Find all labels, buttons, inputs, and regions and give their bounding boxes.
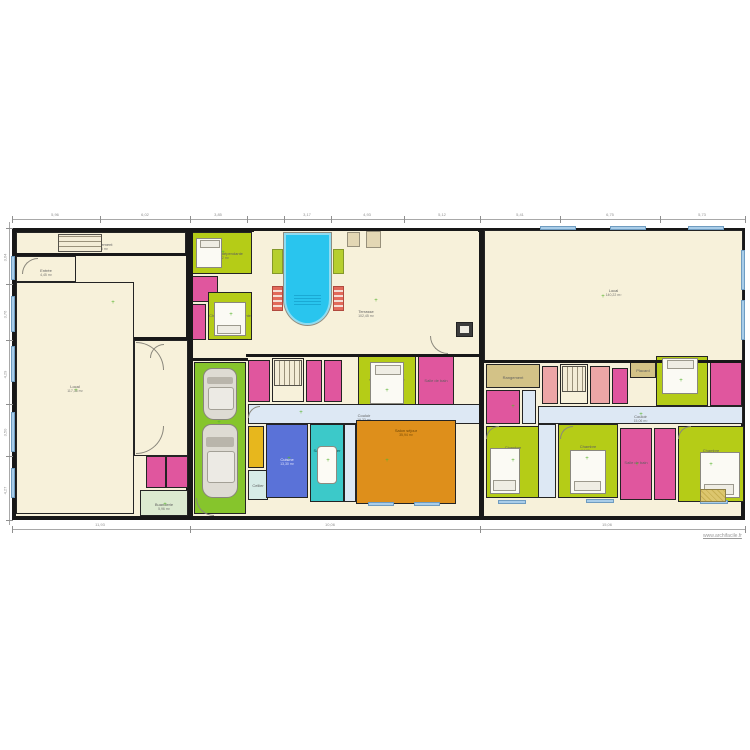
room-salle-de-bain-2[interactable] [486, 390, 520, 424]
room-label: Salon séjour35,94 m² [357, 428, 455, 438]
dimension-tick [745, 216, 746, 223]
room-rangement[interactable]: Rangement [486, 364, 540, 388]
window [368, 502, 394, 506]
window [741, 300, 745, 340]
room-wc-centre-1[interactable] [306, 360, 322, 402]
dimension-label: 10,06 [325, 522, 335, 527]
fixture[interactable] [0, 241, 12, 250]
dimension-label: 11,93 [95, 522, 105, 527]
fixture[interactable] [0, 533, 16, 547]
room-label: Cellier [249, 483, 267, 488]
sun-lounger-green[interactable] [272, 249, 283, 274]
bed[interactable] [214, 302, 246, 336]
dimension-label: 5,41 [516, 212, 524, 217]
dimension-line [12, 219, 745, 220]
fixture[interactable] [0, 321, 9, 329]
fixture[interactable] [0, 229, 9, 241]
room-wc-droit-2[interactable] [590, 366, 610, 404]
room-label: Local140,22 m² [485, 288, 742, 298]
room-label: Cuisine13,30 m² [267, 457, 307, 467]
window [11, 346, 15, 382]
fixture[interactable] [0, 14, 6, 21]
deck-box[interactable] [347, 232, 360, 247]
wall-segment [134, 337, 190, 340]
bed[interactable] [570, 450, 606, 494]
room-salle-de-bain-1[interactable]: Salle de bain [418, 356, 454, 406]
room-cellier[interactable]: Cellier [248, 470, 268, 500]
dimension-tick [12, 216, 13, 223]
fixture[interactable] [0, 54, 38, 72]
dimension-label: 3,50 [2, 429, 7, 437]
dimension-tick [660, 216, 661, 223]
dimension-tick [190, 526, 191, 533]
dimension-tick [6, 404, 13, 405]
bed[interactable] [490, 448, 520, 494]
window [688, 226, 724, 230]
fixture[interactable] [0, 176, 9, 184]
window [741, 250, 745, 290]
room-wc-gauche-1[interactable] [146, 456, 166, 488]
dimension-label: 3,17 [303, 212, 311, 217]
room-label: Rangement [487, 375, 539, 380]
room-salle-eau-4[interactable] [654, 428, 676, 500]
dimension-label: 4,29 [2, 371, 7, 379]
room-buanderie[interactable]: Buanderie5,96 m² [140, 490, 188, 516]
window [414, 502, 440, 506]
fixture[interactable] [0, 184, 9, 194]
dimension-label: 6,02 [141, 212, 149, 217]
wall-segment [246, 354, 480, 357]
sun-lounger-red[interactable] [333, 286, 344, 311]
dimension-tick [745, 526, 746, 533]
wall-segment [12, 253, 190, 256]
dimension-tick [190, 216, 191, 223]
fixture[interactable] [0, 7, 6, 14]
room-label: Salle de bain [621, 460, 651, 465]
room-wc-centre-2[interactable] [324, 360, 342, 402]
fixture[interactable] [0, 499, 12, 509]
room-salle-eau-2[interactable] [248, 360, 270, 402]
dimension-label: 5,96 [51, 212, 59, 217]
fixture[interactable] [0, 21, 6, 28]
deck-box[interactable] [366, 231, 381, 248]
fixture[interactable] [0, 134, 46, 150]
dimension-tick [6, 228, 13, 229]
dimension-tick [480, 216, 481, 223]
room-degagement-droit[interactable] [522, 390, 536, 424]
room-wc-droit-3[interactable] [612, 368, 628, 404]
room-local-gauche[interactable]: Local117,35 m² [16, 282, 134, 514]
dimension-label: 15,06 [602, 522, 612, 527]
room-label: Buanderie5,96 m² [141, 502, 187, 512]
window [540, 226, 576, 230]
wall-segment [192, 358, 248, 361]
floor-plan-canvas: Dégagement10,65 m²Entrée4,45 m²Local117,… [0, 0, 750, 750]
dimension-label: 5,12 [438, 212, 446, 217]
dimension-label: 4,93 [363, 212, 371, 217]
dimension-label: 3,76 [2, 311, 7, 319]
room-local-droit[interactable]: Local140,22 m² [484, 230, 743, 362]
dimension-line [12, 529, 745, 530]
room-salon[interactable]: Salon séjour35,94 m² [356, 420, 456, 504]
dimension-tick [6, 456, 13, 457]
room-cuisine[interactable]: Cuisine13,30 m² [266, 424, 308, 498]
car[interactable] [203, 368, 237, 420]
wall-segment [484, 360, 743, 363]
dimension-line [9, 222, 10, 525]
fixture[interactable] [0, 98, 18, 120]
sun-lounger-green[interactable] [333, 249, 344, 274]
bed[interactable] [662, 358, 698, 394]
dimension-label: 3,64 [2, 254, 7, 262]
room-wc-gauche-2[interactable] [166, 456, 188, 488]
dimension-label: 5,73 [698, 212, 706, 217]
dimension-tick [480, 526, 481, 533]
fixture[interactable] [0, 329, 9, 339]
car[interactable] [202, 424, 238, 498]
wall-segment [188, 228, 193, 520]
fixture[interactable] [0, 35, 6, 42]
staircase[interactable] [274, 360, 302, 386]
closet[interactable] [700, 489, 726, 502]
dimension-tick [247, 216, 248, 223]
fixture[interactable] [0, 120, 26, 134]
room-salle-de-bain-4[interactable]: Salle de bain [620, 428, 652, 500]
window [11, 256, 15, 280]
room-wc-droit-1[interactable] [542, 366, 558, 404]
staircase[interactable] [562, 366, 586, 392]
dining-table[interactable] [317, 446, 337, 484]
room-couloir-droit[interactable]: Couloir15,06 m² [538, 406, 743, 424]
room-label: Salle de bain [419, 378, 453, 383]
bed[interactable] [370, 362, 404, 404]
dimension-tick [100, 216, 101, 223]
dimension-label: 6,75 [606, 212, 614, 217]
fixture[interactable] [0, 0, 6, 7]
dimension-tick [6, 284, 13, 285]
room-douche-1[interactable] [192, 304, 206, 340]
window [586, 499, 614, 503]
room-salle-eau-3[interactable] [248, 426, 264, 468]
barbecue[interactable] [456, 322, 473, 337]
fixture[interactable] [0, 347, 9, 357]
wall-segment [479, 228, 484, 520]
room-label: Couloir15,06 m² [539, 414, 742, 424]
room-couloir-centre-v[interactable] [344, 424, 356, 502]
window [610, 226, 646, 230]
dimension-tick [6, 340, 13, 341]
room-salle-de-bain-3[interactable] [710, 362, 742, 406]
dimension-tick [560, 216, 561, 223]
fixture[interactable] [0, 150, 14, 176]
window [11, 296, 15, 332]
staircase[interactable] [58, 234, 102, 252]
fixture[interactable] [0, 206, 10, 220]
sun-lounger-red[interactable] [272, 286, 283, 311]
dimension-tick [404, 216, 405, 223]
dimension-label: 3,85 [214, 212, 222, 217]
window [11, 468, 15, 498]
dimension-tick [284, 216, 285, 223]
fixture[interactable] [0, 523, 12, 533]
dimension-tick [12, 526, 13, 533]
dimension-tick [331, 216, 332, 223]
fixture[interactable] [0, 28, 6, 35]
window [498, 500, 526, 504]
watermark-link[interactable]: www.archifacile.fr [703, 533, 742, 539]
dimension-tick [6, 520, 13, 521]
fixture[interactable] [0, 194, 10, 206]
swimming-pool[interactable] [284, 233, 331, 325]
bed[interactable] [196, 238, 222, 268]
room-label: Placard [631, 368, 655, 373]
fixture[interactable] [0, 72, 12, 98]
dimension-label: 4,27 [2, 487, 7, 495]
window [11, 412, 15, 452]
floor-plan: Dégagement10,65 m²Entrée4,45 m²Local117,… [0, 0, 750, 750]
room-couloir-droit-v[interactable] [538, 424, 556, 498]
room-label: Local117,35 m² [17, 384, 133, 394]
fixture[interactable] [0, 456, 12, 465]
